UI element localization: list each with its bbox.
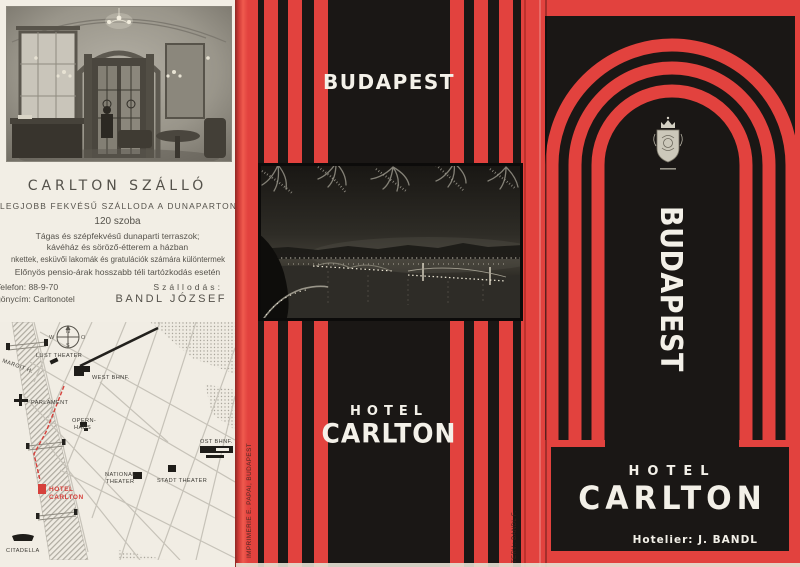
map-label-opern: OPERN- — [72, 418, 96, 424]
body-line-2: kávéház és söröző-étterem a házban — [0, 242, 235, 252]
map-label-haus: HAUS — [74, 425, 91, 431]
hotel-interior-photo — [6, 6, 232, 162]
hotelier-credit: Hotelier: J. BANDL — [633, 534, 758, 546]
mirror-right — [166, 44, 204, 118]
compass-n: N — [66, 329, 70, 335]
map-label-parlament: PARLAMENT — [31, 400, 69, 406]
panel-middle: BUDAPEST — [258, 0, 545, 567]
pilaster-left — [84, 54, 92, 158]
map-label-ost-bhnf: OST BHNF. — [200, 439, 233, 445]
station-slot — [216, 448, 229, 451]
body-line-1: Tágas és szépfekvésű dunaparti terraszok… — [0, 231, 235, 241]
brochure-scan: CARLTON SZÁLLÓ LEGJOBB FEKVÉSŰ SZÁLLODA … — [0, 0, 800, 567]
panel-left: CARLTON SZÁLLÓ LEGJOBB FEKVÉSŰ SZÁLLODA … — [0, 0, 235, 567]
map-label-stadt-theater: STADT THEATER — [157, 478, 207, 484]
body-line-4: Előnyös pensio-árak hosszabb téli tartóz… — [0, 267, 235, 277]
map-label-citadella: CITADELLA — [6, 548, 40, 554]
hotel-name-hu: CARLTON SZÁLLÓ — [0, 178, 235, 194]
city-title-vertical: BUDAPEST — [636, 206, 688, 402]
compass-s: S — [66, 343, 70, 349]
hotel-name: CARLTON — [308, 418, 470, 449]
manager-name: BANDL JÓZSEF — [116, 293, 228, 305]
city-map: N O S W MARGIT H. LUST THEATER WEST BHNF… — [0, 322, 235, 560]
scan-edge — [236, 563, 800, 567]
tagline: LEGJOBB FEKVÉSŰ SZÁLLODA A DUNAPARTON — [0, 201, 235, 211]
manager-label: Szállodás: — [153, 282, 223, 292]
compass-o: O — [81, 335, 86, 341]
room-count: 120 szoba — [0, 216, 235, 227]
compass-w: W — [49, 335, 55, 341]
designer-credit: TERV.: BANDL F. — [512, 511, 518, 563]
hotel-marker — [38, 484, 46, 494]
map-label-carlton: CARLTON — [49, 494, 84, 501]
city-title: BUDAPEST — [318, 70, 460, 94]
map-label-national: NATIONAL — [105, 472, 136, 478]
body-line-3: nkettek, esküvői lakomák és gratulációk … — [0, 255, 244, 264]
hotel-word: HOTEL — [545, 464, 800, 479]
budapest-night-photo — [258, 163, 523, 321]
hotel-word: HOTEL — [328, 404, 450, 419]
map-label-theater: THEATER — [106, 479, 135, 485]
map-label-hotel: HOTEL — [49, 486, 74, 493]
telegram-address: gönycím: Carltonotel — [0, 294, 75, 304]
window-left — [16, 28, 80, 128]
panel-right: BUDAPEST HOTEL CARLTON Hotelier: J. BAND… — [545, 0, 800, 567]
printer-credit: IMPRIMERIE E. PAPAI, BUDAPEST — [246, 443, 253, 558]
hotel-name: CARLTON — [545, 480, 800, 518]
map-label-lust-theater: LUST THEATER — [36, 353, 82, 359]
phone-number: Telefon: 88-9-70 — [0, 282, 58, 292]
map-label-west-bhnf: WEST BHNF. — [92, 375, 130, 381]
fold-highlight — [539, 0, 541, 567]
fold-shadow — [524, 0, 526, 567]
